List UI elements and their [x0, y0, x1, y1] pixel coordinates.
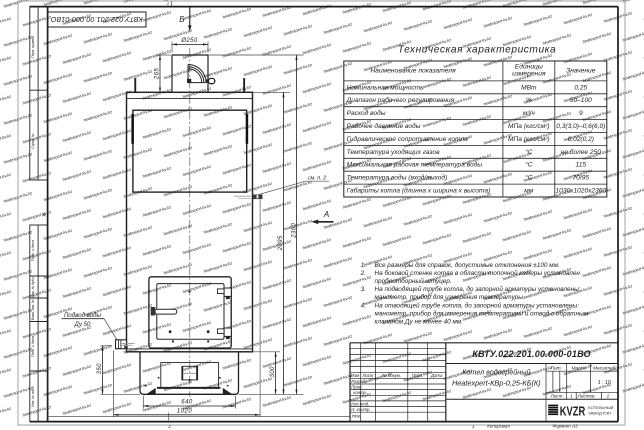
svg-text:heatexpert-kv.kz: heatexpert-kv.kz — [363, 20, 393, 33]
svg-text:Heatexpert-КВр-0,25-КБ(К): Heatexpert-КВр-0,25-КБ(К) — [452, 378, 541, 387]
svg-text:heatexpert-kv.kz: heatexpert-kv.kz — [83, 187, 113, 200]
svg-text:МВт: МВт — [521, 84, 537, 91]
svg-text:2095: 2095 — [278, 235, 284, 251]
svg-text:heatexpert-kv.kz: heatexpert-kv.kz — [523, 325, 553, 338]
svg-text:heatexpert-kv.kz: heatexpert-kv.kz — [123, 380, 153, 393]
svg-text:heatexpert-kv.kz: heatexpert-kv.kz — [83, 226, 113, 239]
svg-text:МПа (кгс/см²): МПа (кгс/см²) — [508, 123, 550, 130]
svg-text:2360: 2360 — [291, 222, 297, 238]
svg-text:Котел водогрейный: Котел водогрейный — [462, 367, 530, 376]
svg-text:Подп.: Подп. — [412, 373, 423, 378]
svg-text:heatexpert-kv.kz: heatexpert-kv.kz — [563, 51, 593, 64]
svg-text:heatexpert-kv.kz: heatexpert-kv.kz — [323, 21, 353, 34]
svg-text:heatexpert-kv.kz: heatexpert-kv.kz — [262, 199, 292, 212]
svg-text:Максимальная рабочая температу: Максимальная рабочая температура воды — [347, 161, 483, 169]
svg-text:Подп. и дата: Подп. и дата — [31, 336, 35, 357]
svg-text:Техническая характеристика: Техническая характеристика — [398, 45, 557, 56]
svg-text:heatexpert-kv.kz: heatexpert-kv.kz — [203, 260, 233, 273]
svg-text:heatexpert-kv.kz: heatexpert-kv.kz — [243, 64, 273, 77]
svg-text:heatexpert-kv.kz: heatexpert-kv.kz — [542, 227, 572, 240]
svg-text:Разраб.: Разраб. — [351, 379, 367, 384]
svg-text:heatexpert-kv.kz: heatexpert-kv.kz — [243, 376, 273, 389]
svg-text:heatexpert-kv.kz: heatexpert-kv.kz — [123, 29, 153, 42]
svg-text:Наименование показателя: Наименование показателя — [370, 68, 456, 75]
svg-text:манометр, прибор для измерения: манометр, прибор для измерения температу… — [375, 309, 589, 317]
svg-text:heatexpert-kv.kz: heatexpert-kv.kz — [342, 235, 372, 248]
svg-text:heatexpert-kv.kz: heatexpert-kv.kz — [0, 55, 12, 68]
svg-text:heatexpert-kv.kz: heatexpert-kv.kz — [422, 76, 452, 89]
svg-text:heatexpert-kv.kz: heatexpert-kv.kz — [142, 165, 172, 178]
svg-text:контр.: контр. — [353, 390, 367, 395]
svg-text:Диапазон рабочего регулировани: Диапазон рабочего регулирования — [346, 96, 455, 104]
svg-text:heatexpert-kv.kz: heatexpert-kv.kz — [182, 164, 212, 177]
svg-text:heatexpert-kv.kz: heatexpert-kv.kz — [483, 93, 513, 106]
svg-text:heatexpert-kv.kz: heatexpert-kv.kz — [142, 204, 172, 217]
svg-text:heatexpert-kv.kz: heatexpert-kv.kz — [582, 265, 612, 278]
svg-text:heatexpert-kv.kz: heatexpert-kv.kz — [262, 316, 292, 329]
svg-text:Все размеры для справок, допус: Все размеры для справок, допустимые откл… — [375, 261, 560, 269]
svg-text:Справ. №: Справ. № — [31, 133, 35, 149]
svg-text:heatexpert-kv.kz: heatexpert-kv.kz — [182, 281, 212, 294]
svg-text:heatexpert-kv.kz: heatexpert-kv.kz — [403, 18, 433, 31]
svg-text:heatexpert-kv.kz: heatexpert-kv.kz — [102, 50, 132, 63]
svg-text:1: 1 — [570, 394, 573, 399]
svg-text:heatexpert-kv.kz: heatexpert-kv.kz — [203, 104, 233, 117]
svg-text:heatexpert-kv.kz: heatexpert-kv.kz — [302, 159, 332, 172]
svg-text:300: 300 — [270, 366, 276, 377]
svg-text:265: 265 — [155, 68, 161, 80]
svg-text:heatexpert-kv.kz: heatexpert-kv.kz — [483, 15, 513, 28]
svg-text:Инв. № дубл.: Инв. № дубл. — [31, 277, 35, 298]
svg-text:heatexpert-kv.kz: heatexpert-kv.kz — [342, 40, 372, 53]
svg-text:heatexpert-kv.kz: heatexpert-kv.kz — [83, 148, 113, 161]
svg-text:heatexpert-kv.kz: heatexpert-kv.kz — [62, 129, 92, 142]
svg-text:heatexpert-kv.kz: heatexpert-kv.kz — [62, 168, 92, 181]
svg-text:heatexpert-kv.kz: heatexpert-kv.kz — [182, 47, 212, 60]
svg-text:heatexpert-kv.kz: heatexpert-kv.kz — [102, 284, 132, 297]
svg-text:1 : 10: 1 : 10 — [598, 380, 611, 386]
svg-text:heatexpert-kv.kz: heatexpert-kv.kz — [182, 125, 212, 138]
svg-text:heatexpert-kv.kz: heatexpert-kv.kz — [243, 298, 273, 311]
svg-text:Лит.: Лит. — [550, 365, 562, 371]
svg-text:heatexpert-kv.kz: heatexpert-kv.kz — [102, 89, 132, 102]
svg-text:Температура уходящих газов: Температура уходящих газов — [347, 148, 440, 156]
svg-text:heatexpert-kv.kz: heatexpert-kv.kz — [283, 140, 313, 153]
svg-text:heatexpert-kv.kz: heatexpert-kv.kz — [462, 230, 492, 243]
svg-text:heatexpert-kv.kz: heatexpert-kv.kz — [203, 65, 233, 78]
svg-text:Значение: Значение — [566, 68, 596, 75]
svg-text:3.: 3. — [361, 286, 366, 293]
svg-text:heatexpert-kv.kz: heatexpert-kv.kz — [83, 343, 113, 356]
svg-text:°С: °С — [525, 174, 533, 182]
svg-text:heatexpert-kv.kz: heatexpert-kv.kz — [502, 229, 532, 242]
svg-text:heatexpert-kv.kz: heatexpert-kv.kz — [462, 113, 492, 126]
svg-text:Гидравлическое сопротивление к: Гидравлическое сопротивление котла — [347, 135, 468, 143]
svg-text:heatexpert-kv.kz: heatexpert-kv.kz — [582, 31, 612, 44]
svg-text:heatexpert-kv.kz: heatexpert-kv.kz — [203, 338, 233, 351]
svg-text:heatexpert-kv.kz: heatexpert-kv.kz — [523, 247, 553, 260]
svg-text:Масса: Масса — [572, 365, 587, 371]
svg-text:Нач.отд.: Нач.отд. — [351, 402, 369, 407]
svg-text:Габариты котла (длинна х ширин: Габариты котла (длинна х ширина х высота… — [347, 187, 491, 195]
svg-text:heatexpert-kv.kz: heatexpert-kv.kz — [203, 182, 233, 195]
svg-text:манометр, прибор для измерения: манометр, прибор для измерения температу… — [375, 293, 525, 301]
svg-text:heatexpert-kv.kz: heatexpert-kv.kz — [203, 299, 233, 312]
svg-text:№ докум.: № докум. — [382, 373, 401, 378]
svg-text:%: % — [526, 97, 532, 104]
svg-text:heatexpert-kv.kz: heatexpert-kv.kz — [62, 90, 92, 103]
svg-text:°С: °С — [525, 148, 533, 156]
svg-text:heatexpert-kv.kz: heatexpert-kv.kz — [123, 224, 153, 237]
svg-text:heatexpert-kv.kz: heatexpert-kv.kz — [563, 207, 593, 220]
svg-text:heatexpert-kv.kz: heatexpert-kv.kz — [222, 396, 252, 409]
svg-text:heatexpert-kv.kz: heatexpert-kv.kz — [323, 255, 353, 268]
svg-text:heatexpert-kv.kz: heatexpert-kv.kz — [163, 145, 193, 158]
svg-text:heatexpert-kv.kz: heatexpert-kv.kz — [243, 220, 273, 233]
svg-text:измерения: измерения — [512, 71, 546, 78]
svg-text:КВТУ.022.201.00.000-01ВО: КВТУ.022.201.00.000-01ВО — [51, 15, 143, 24]
svg-text:пробоотборный штуцер.: пробоотборный штуцер. — [375, 277, 452, 285]
svg-text:heatexpert-kv.kz: heatexpert-kv.kz — [102, 206, 132, 219]
svg-text:heatexpert-kv.kz: heatexpert-kv.kz — [123, 263, 153, 276]
svg-text:heatexpert-kv.kz: heatexpert-kv.kz — [422, 115, 452, 128]
svg-text:heatexpert-kv.kz: heatexpert-kv.kz — [182, 242, 212, 255]
svg-text:heatexpert-kv.kz: heatexpert-kv.kz — [0, 250, 12, 263]
svg-text:heatexpert-kv.kz: heatexpert-kv.kz — [422, 232, 452, 245]
svg-text:1030х1020х2360: 1030х1020х2360 — [555, 188, 606, 195]
svg-text:На боковой стенке котла в обла: На боковой стенке котла в области топочн… — [375, 269, 581, 277]
svg-text:Подп. и дата: Подп. и дата — [31, 240, 35, 261]
svg-text:Взам. инв. №: Взам. инв. № — [31, 299, 35, 320]
svg-text:КОТЕЛЬНЫЙ: КОТЕЛЬНЫЙ — [588, 405, 613, 410]
svg-text:Формат А3: Формат А3 — [552, 423, 578, 428]
svg-text:heatexpert-kv.kz: heatexpert-kv.kz — [563, 324, 593, 337]
svg-text:Ø250: Ø250 — [180, 38, 198, 44]
svg-text:0,25: 0,25 — [574, 84, 587, 91]
svg-text:МПа (кгс/см²): МПа (кгс/см²) — [508, 136, 550, 143]
svg-text:heatexpert-kv.kz: heatexpert-kv.kz — [342, 313, 372, 326]
svg-text:heatexpert-kv.kz: heatexpert-kv.kz — [443, 329, 473, 342]
svg-text:heatexpert-kv.kz: heatexpert-kv.kz — [342, 274, 372, 287]
svg-text:Листов: Листов — [577, 394, 595, 399]
svg-text:heatexpert-kv.kz: heatexpert-kv.kz — [422, 193, 452, 206]
svg-text:heatexpert-kv.kz: heatexpert-kv.kz — [483, 327, 513, 340]
svg-text:Подвод воды: Подвод воды — [64, 312, 101, 319]
svg-text:heatexpert-kv.kz: heatexpert-kv.kz — [403, 330, 433, 343]
svg-text:см. п. 2: см. п. 2 — [308, 175, 326, 181]
svg-text:heatexpert-kv.kz: heatexpert-kv.kz — [262, 394, 292, 407]
svg-text:heatexpert-kv.kz: heatexpert-kv.kz — [0, 133, 12, 146]
svg-text:Инв. № подл.: Инв. № подл. — [31, 386, 35, 407]
svg-text:heatexpert-kv.kz: heatexpert-kv.kz — [222, 45, 252, 58]
svg-text:Дата: Дата — [430, 373, 443, 378]
svg-text:heatexpert-kv.kz: heatexpert-kv.kz — [203, 143, 233, 156]
svg-text:heatexpert-kv.kz: heatexpert-kv.kz — [102, 323, 132, 336]
svg-text:70/95: 70/95 — [573, 175, 590, 182]
svg-text:heatexpert-kv.kz: heatexpert-kv.kz — [83, 382, 113, 395]
svg-text:heatexpert-kv.kz: heatexpert-kv.kz — [283, 62, 313, 75]
svg-text:Рабочее давление воды: Рабочее давление воды — [347, 122, 421, 130]
svg-text:heatexpert-kv.kz: heatexpert-kv.kz — [142, 243, 172, 256]
svg-text:ЗАВОД РЭП: ЗАВОД РЭП — [588, 411, 611, 416]
svg-text:Утв.: Утв. — [351, 414, 361, 419]
svg-text:На подводящей трубе котла, до: На подводящей трубе котла, до запорной а… — [375, 285, 581, 293]
svg-text:heatexpert-kv.kz: heatexpert-kv.kz — [203, 26, 233, 39]
svg-text:heatexpert-kv.kz: heatexpert-kv.kz — [243, 259, 273, 272]
svg-text:heatexpert-kv.kz: heatexpert-kv.kz — [283, 374, 313, 387]
svg-text:heatexpert-kv.kz: heatexpert-kv.kz — [443, 17, 473, 30]
svg-text:heatexpert-kv.kz: heatexpert-kv.kz — [302, 3, 332, 16]
svg-text:heatexpert-kv.kz: heatexpert-kv.kz — [62, 402, 92, 415]
svg-text:heatexpert-kv.kz: heatexpert-kv.kz — [283, 257, 313, 270]
svg-text:heatexpert-kv.kz: heatexpert-kv.kz — [342, 1, 372, 14]
svg-text:не более 250: не более 250 — [561, 148, 602, 156]
svg-text:9: 9 — [579, 110, 583, 117]
svg-text:heatexpert-kv.kz: heatexpert-kv.kz — [302, 81, 332, 94]
svg-text:heatexpert-kv.kz: heatexpert-kv.kz — [102, 401, 132, 414]
svg-text:м³/ч: м³/ч — [523, 110, 536, 117]
svg-text:heatexpert-kv.kz: heatexpert-kv.kz — [182, 203, 212, 216]
svg-text:Лист: Лист — [361, 373, 373, 378]
svg-text:КВТУ.022.201.00.000-01ВО: КВТУ.022.201.00.000-01ВО — [472, 349, 591, 359]
svg-text:Номинальная мощность: Номинальная мощность — [347, 84, 425, 91]
svg-text:heatexpert-kv.kz: heatexpert-kv.kz — [323, 60, 353, 73]
svg-text:heatexpert-kv.kz: heatexpert-kv.kz — [0, 406, 12, 419]
svg-text:heatexpert-kv.kz: heatexpert-kv.kz — [163, 262, 193, 275]
svg-text:heatexpert-kv.kz: heatexpert-kv.kz — [102, 362, 132, 375]
svg-text:heatexpert-kv.kz: heatexpert-kv.kz — [222, 201, 252, 214]
svg-text:Перв. примен.: Перв. примен. — [31, 35, 35, 58]
svg-text:А: А — [323, 210, 329, 219]
svg-text:1020: 1020 — [177, 409, 193, 415]
svg-text:heatexpert-kv.kz: heatexpert-kv.kz — [302, 237, 332, 250]
svg-text:heatexpert-kv.kz: heatexpert-kv.kz — [102, 128, 132, 141]
svg-text:heatexpert-kv.kz: heatexpert-kv.kz — [123, 146, 153, 159]
svg-text:heatexpert-kv.kz: heatexpert-kv.kz — [163, 223, 193, 236]
svg-text:heatexpert-kv.kz: heatexpert-kv.kz — [222, 240, 252, 253]
svg-text:heatexpert-kv.kz: heatexpert-kv.kz — [523, 13, 553, 26]
svg-text:2: 2 — [166, 1, 170, 6]
svg-text:heatexpert-kv.kz: heatexpert-kv.kz — [222, 84, 252, 97]
svg-text:heatexpert-kv.kz: heatexpert-kv.kz — [443, 212, 473, 225]
svg-text:heatexpert-kv.kz: heatexpert-kv.kz — [0, 367, 12, 380]
svg-text:heatexpert-kv.kz: heatexpert-kv.kz — [302, 120, 332, 133]
svg-text:Масштаб: Масштаб — [593, 365, 616, 371]
svg-text:2.: 2. — [360, 270, 366, 277]
svg-text:heatexpert-kv.kz: heatexpert-kv.kz — [262, 238, 292, 251]
svg-text:heatexpert-kv.kz: heatexpert-kv.kz — [302, 276, 332, 289]
svg-text:heatexpert-kv.kz: heatexpert-kv.kz — [342, 196, 372, 209]
svg-text:heatexpert-kv.kz: heatexpert-kv.kz — [382, 234, 412, 247]
svg-text:Ду 50: Ду 50 — [74, 322, 91, 328]
svg-text:heatexpert-kv.kz: heatexpert-kv.kz — [0, 16, 12, 29]
svg-text:heatexpert-kv.kz: heatexpert-kv.kz — [243, 337, 273, 350]
svg-text:115: 115 — [576, 162, 587, 169]
svg-text:heatexpert-kv.kz: heatexpert-kv.kz — [243, 25, 273, 38]
svg-text:heatexpert-kv.kz: heatexpert-kv.kz — [323, 372, 353, 385]
svg-text:heatexpert-kv.kz: heatexpert-kv.kz — [142, 126, 172, 139]
svg-text:Копировал: Копировал — [487, 423, 510, 428]
svg-text:50–100: 50–100 — [570, 97, 592, 104]
svg-text:2: 2 — [167, 424, 171, 429]
svg-text:heatexpert-kv.kz: heatexpert-kv.kz — [483, 171, 513, 184]
svg-text:heatexpert-kv.kz: heatexpert-kv.kz — [0, 94, 12, 107]
svg-text:0,3(3,0)–0,6(6,0): 0,3(3,0)–0,6(6,0) — [556, 123, 605, 130]
svg-text:heatexpert-kv.kz: heatexpert-kv.kz — [102, 245, 132, 258]
svg-text:heatexpert-kv.kz: heatexpert-kv.kz — [83, 31, 113, 44]
svg-text:heatexpert-kv.kz: heatexpert-kv.kz — [483, 210, 513, 223]
svg-text:heatexpert-kv.kz: heatexpert-kv.kz — [83, 265, 113, 278]
svg-text:heatexpert-kv.kz: heatexpert-kv.kz — [0, 172, 12, 185]
svg-text:1.: 1. — [361, 262, 366, 269]
svg-text:heatexpert-kv.kz: heatexpert-kv.kz — [62, 246, 92, 259]
svg-text:Единицы: Единицы — [515, 63, 543, 71]
svg-text:heatexpert-kv.kz: heatexpert-kv.kz — [62, 285, 92, 298]
svg-text:heatexpert-kv.kz: heatexpert-kv.kz — [542, 110, 572, 123]
svg-text:heatexpert-kv.kz: heatexpert-kv.kz — [563, 246, 593, 259]
svg-text:heatexpert-kv.kz: heatexpert-kv.kz — [0, 211, 12, 224]
svg-text:heatexpert-kv.kz: heatexpert-kv.kz — [283, 335, 313, 348]
svg-text:мм: мм — [524, 188, 534, 195]
svg-text:heatexpert-kv.kz: heatexpert-kv.kz — [462, 0, 492, 10]
svg-text:heatexpert-kv.kz: heatexpert-kv.kz — [83, 70, 113, 83]
svg-text:KVZR: KVZR — [560, 404, 586, 418]
svg-text:heatexpert-kv.kz: heatexpert-kv.kz — [0, 328, 12, 341]
svg-text:heatexpert-kv.kz: heatexpert-kv.kz — [0, 289, 12, 302]
svg-text:heatexpert-kv.kz: heatexpert-kv.kz — [582, 226, 612, 239]
svg-text:heatexpert-kv.kz: heatexpert-kv.kz — [163, 184, 193, 197]
svg-text:heatexpert-kv.kz: heatexpert-kv.kz — [83, 109, 113, 122]
svg-text:heatexpert-kv.kz: heatexpert-kv.kz — [323, 333, 353, 346]
svg-text:Расход воды: Расход воды — [347, 109, 386, 117]
svg-text:heatexpert-kv.kz: heatexpert-kv.kz — [262, 121, 292, 134]
svg-text:heatexpert-kv.kz: heatexpert-kv.kz — [302, 315, 332, 328]
svg-text:heatexpert-kv.kz: heatexpert-kv.kz — [302, 354, 332, 367]
svg-text:heatexpert-kv.kz: heatexpert-kv.kz — [262, 82, 292, 95]
svg-text:heatexpert-kv.kz: heatexpert-kv.kz — [262, 277, 292, 290]
svg-text:heatexpert-kv.kz: heatexpert-kv.kz — [262, 355, 292, 368]
svg-text:На отводящей трубе котла, до з: На отводящей трубе котла, до запорной ар… — [375, 301, 580, 309]
svg-text:heatexpert-kv.kz: heatexpert-kv.kz — [523, 208, 553, 221]
svg-text:heatexpert-kv.kz: heatexpert-kv.kz — [403, 213, 433, 226]
svg-text:heatexpert-kv.kz: heatexpert-kv.kz — [302, 393, 332, 406]
svg-text:Температура воды (вход/выход): Температура воды (вход/выход) — [347, 174, 448, 182]
svg-text:heatexpert-kv.kz: heatexpert-kv.kz — [563, 12, 593, 25]
svg-text:heatexpert-kv.kz: heatexpert-kv.kz — [222, 357, 252, 370]
svg-text:heatexpert-kv.kz: heatexpert-kv.kz — [283, 218, 313, 231]
svg-text:heatexpert-kv.kz: heatexpert-kv.kz — [483, 249, 513, 262]
svg-text:heatexpert-kv.kz: heatexpert-kv.kz — [123, 68, 153, 81]
svg-text:Лист: Лист — [550, 394, 563, 399]
svg-text:heatexpert-kv.kz: heatexpert-kv.kz — [462, 386, 492, 399]
svg-text:heatexpert-kv.kz: heatexpert-kv.kz — [302, 42, 332, 55]
svg-text:heatexpert-kv.kz: heatexpert-kv.kz — [62, 363, 92, 376]
svg-text:°С: °С — [525, 161, 533, 169]
svg-text:640: 640 — [181, 400, 193, 406]
svg-text:клапаном Ду не менее 40 мм.: клапаном Ду не менее 40 мм. — [375, 319, 464, 326]
svg-text:heatexpert-kv.kz: heatexpert-kv.kz — [62, 51, 92, 64]
svg-text:heatexpert-kv.kz: heatexpert-kv.kz — [203, 221, 233, 234]
svg-text:heatexpert-kv.kz: heatexpert-kv.kz — [262, 160, 292, 173]
svg-text:Пров.: Пров. — [351, 385, 362, 390]
svg-text:heatexpert-kv.kz: heatexpert-kv.kz — [163, 106, 193, 119]
svg-text:heatexpert-kv.kz: heatexpert-kv.kz — [382, 351, 412, 364]
svg-text:heatexpert-kv.kz: heatexpert-kv.kz — [222, 6, 252, 19]
svg-text:Б: Б — [179, 15, 184, 24]
svg-text:heatexpert-kv.kz: heatexpert-kv.kz — [182, 8, 212, 21]
svg-text:350: 350 — [97, 363, 103, 374]
svg-text:Изм: Изм — [351, 373, 359, 378]
svg-text:4.: 4. — [361, 302, 366, 309]
svg-text:heatexpert-kv.kz: heatexpert-kv.kz — [283, 101, 313, 114]
svg-text:0,02(0,2): 0,02(0,2) — [568, 136, 594, 143]
svg-text:heatexpert-kv.kz: heatexpert-kv.kz — [62, 207, 92, 220]
svg-text:heatexpert-kv.kz: heatexpert-kv.kz — [283, 23, 313, 36]
svg-text:heatexpert-kv.kz: heatexpert-kv.kz — [323, 294, 353, 307]
svg-text:heatexpert-kv.kz: heatexpert-kv.kz — [283, 296, 313, 309]
svg-text:2: 2 — [606, 394, 610, 399]
svg-text:А: А — [41, 213, 46, 219]
svg-text:heatexpert-kv.kz: heatexpert-kv.kz — [363, 215, 393, 228]
svg-text:heatexpert-kv.kz: heatexpert-kv.kz — [102, 167, 132, 180]
svg-text:heatexpert-kv.kz: heatexpert-kv.kz — [163, 379, 193, 392]
svg-text:Н. контр.: Н. контр. — [351, 407, 370, 412]
